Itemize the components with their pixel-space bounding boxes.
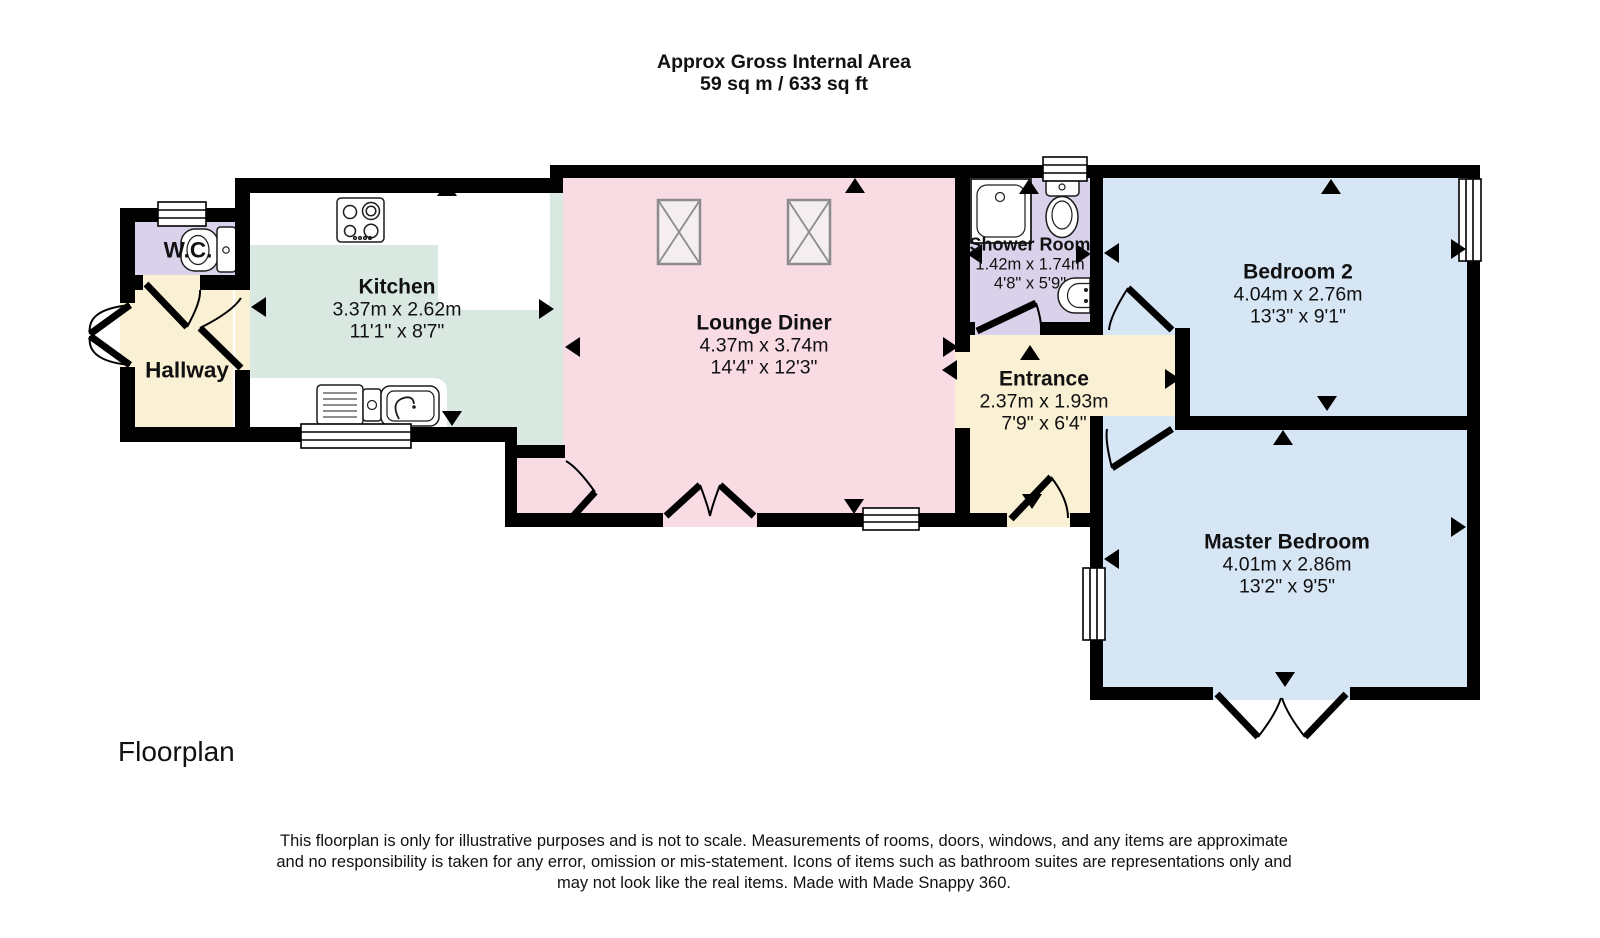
wall bbox=[505, 513, 663, 527]
wall bbox=[1350, 687, 1480, 700]
door-swing-icon bbox=[1217, 694, 1346, 737]
disclaimer-line: This floorplan is only for illustrative … bbox=[276, 831, 1291, 852]
disclaimer: This floorplan is only for illustrative … bbox=[276, 831, 1291, 894]
wall bbox=[135, 275, 143, 290]
kitchen-sink-icon bbox=[317, 385, 439, 426]
disclaimer-line: and no responsibility is taken for any e… bbox=[276, 852, 1291, 873]
wall bbox=[955, 322, 975, 335]
wall bbox=[120, 222, 135, 303]
room-label-bedroom2: Bedroom 2 4.04m x 2.76m 13'3" x 9'1" bbox=[1234, 261, 1363, 328]
floorplan-canvas bbox=[0, 0, 1600, 938]
roof-window-icon bbox=[788, 200, 830, 264]
window-icon bbox=[301, 424, 411, 448]
wall bbox=[505, 427, 517, 527]
floorplan-caption: Floorplan bbox=[118, 736, 235, 768]
room-label-master: Master Bedroom 4.01m x 2.86m 13'2" x 9'5… bbox=[1204, 531, 1370, 598]
wall bbox=[237, 178, 563, 193]
window-icon bbox=[1083, 568, 1105, 640]
wall bbox=[517, 445, 565, 458]
floorplan-page: Approx Gross Internal Area 59 sq m / 633… bbox=[0, 0, 1600, 938]
archway-gap bbox=[955, 352, 970, 428]
room-label-entrance: Entrance 2.37m x 1.93m 7'9" x 6'4" bbox=[980, 368, 1109, 435]
wall bbox=[757, 513, 867, 527]
wall bbox=[955, 428, 970, 527]
room-label-wc: W.C. bbox=[164, 239, 213, 262]
window-icon bbox=[1043, 157, 1087, 181]
wall bbox=[550, 165, 1480, 178]
toilet-icon bbox=[1046, 179, 1079, 238]
wall bbox=[1090, 416, 1103, 687]
roof-window-icon bbox=[658, 200, 700, 264]
wall bbox=[1090, 687, 1213, 700]
hob-icon bbox=[337, 198, 384, 242]
window-icon bbox=[863, 508, 919, 530]
door-gap bbox=[1213, 687, 1350, 700]
room-fill-lounge bbox=[517, 458, 563, 513]
window-icon bbox=[158, 202, 206, 226]
wall bbox=[1185, 416, 1480, 430]
room-label-lounge: Lounge Diner 4.37m x 3.74m 14'4" x 12'3" bbox=[696, 312, 831, 379]
room-label-shower: Shower Room 1.42m x 1.74m 4'8" x 5'9" bbox=[964, 235, 1096, 293]
title-line1: Approx Gross Internal Area bbox=[657, 51, 911, 73]
room-label-hallway: Hallway bbox=[145, 359, 229, 382]
page-title: Approx Gross Internal Area 59 sq m / 633… bbox=[657, 51, 911, 95]
wall bbox=[235, 178, 250, 290]
title-line2: 59 sq m / 633 sq ft bbox=[657, 73, 911, 95]
wall bbox=[235, 370, 250, 427]
disclaimer-line: may not look like the real items. Made w… bbox=[276, 873, 1291, 894]
room-label-kitchen: Kitchen 3.37m x 2.62m 11'1" x 8'7" bbox=[333, 276, 462, 343]
room-fill-kitchen bbox=[517, 427, 565, 447]
